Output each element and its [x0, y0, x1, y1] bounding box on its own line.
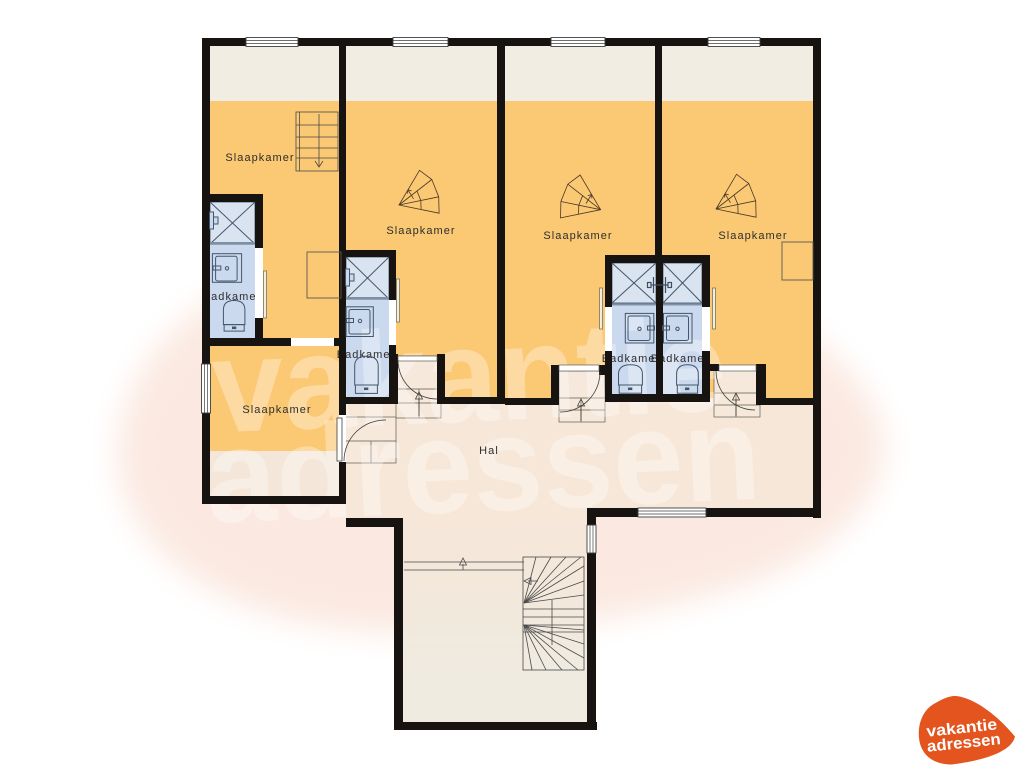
svg-text:Slaapkamer: Slaapkamer [718, 230, 787, 242]
svg-text:Slaapkamer: Slaapkamer [242, 404, 311, 416]
svg-text:Hal: Hal [479, 445, 499, 457]
svg-text:Slaapkamer: Slaapkamer [386, 225, 455, 237]
svg-text:Slaapkamer: Slaapkamer [543, 230, 612, 242]
svg-text:Badkamer: Badkamer [203, 291, 262, 303]
svg-text:Slaapkamer: Slaapkamer [225, 152, 294, 164]
